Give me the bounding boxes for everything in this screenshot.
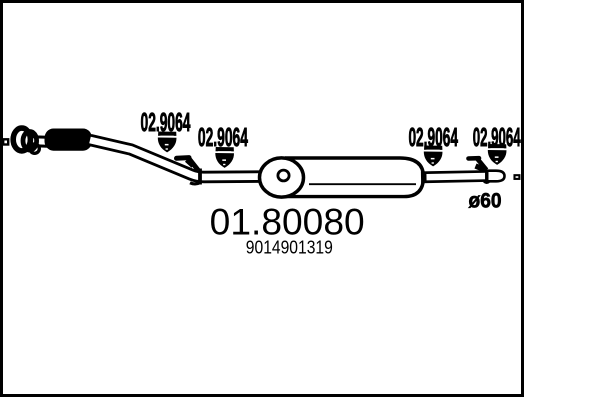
svg-text:02.9064: 02.9064 — [141, 107, 191, 137]
svg-text:9014901319: 9014901319 — [246, 237, 333, 258]
svg-text:02.9064: 02.9064 — [408, 122, 458, 152]
svg-text:ø60: ø60 — [469, 190, 502, 213]
svg-text:02.9064: 02.9064 — [473, 122, 521, 152]
svg-text:02.9064: 02.9064 — [198, 122, 248, 152]
